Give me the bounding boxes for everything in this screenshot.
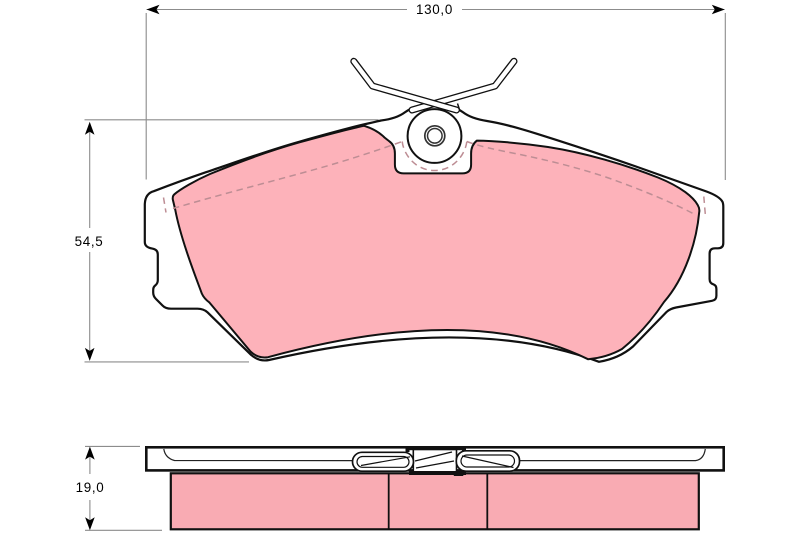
svg-text:130,0: 130,0 [416,2,453,17]
svg-text:54,5: 54,5 [75,234,104,249]
svg-text:19,0: 19,0 [76,480,105,495]
